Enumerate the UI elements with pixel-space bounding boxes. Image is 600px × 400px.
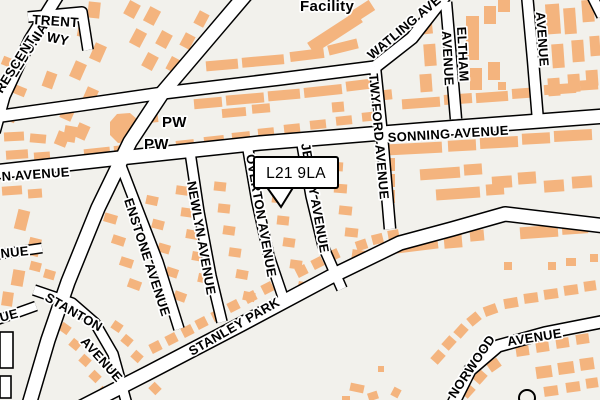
building: [579, 357, 595, 371]
building: [28, 189, 43, 199]
postcode-callout-label: L21 9LA: [266, 165, 326, 182]
building: [585, 377, 598, 389]
building: [282, 237, 295, 248]
building: [484, 6, 496, 24]
building: [87, 1, 101, 18]
poi-label-facility-4: Facility: [300, 0, 354, 15]
building: [228, 247, 241, 258]
building: [345, 227, 359, 237]
building: [565, 381, 580, 393]
building: [419, 74, 432, 93]
building: [277, 215, 290, 225]
building: [522, 132, 551, 144]
building: [339, 205, 353, 215]
poi-label-pw-5: PW: [162, 114, 187, 131]
building: [583, 280, 596, 292]
building: [575, 333, 589, 345]
building: [423, 44, 437, 67]
building: [551, 44, 565, 69]
building: [332, 101, 345, 112]
building: [544, 179, 565, 192]
building: [464, 163, 483, 175]
building: [580, 79, 599, 90]
building: [378, 366, 384, 372]
building: [563, 8, 577, 35]
building: [589, 36, 600, 57]
street-label-avenue-10: AVENUE: [439, 30, 457, 86]
building: [336, 115, 353, 126]
building: [543, 288, 558, 300]
building: [566, 258, 576, 266]
white-building: [0, 376, 11, 398]
building: [548, 262, 556, 270]
building: [214, 181, 227, 191]
building: [448, 139, 477, 151]
poi-label-pw-6: PW: [144, 136, 169, 153]
building: [310, 119, 327, 130]
building: [504, 262, 512, 270]
building: [488, 62, 500, 80]
building: [554, 129, 593, 142]
building: [2, 185, 23, 195]
building: [523, 292, 538, 304]
street-label-nue-14: NUE: [0, 243, 30, 261]
building: [486, 183, 505, 195]
building: [6, 149, 29, 160]
building: [543, 385, 558, 397]
building: [590, 254, 598, 262]
building: [252, 103, 271, 114]
building: [30, 133, 47, 143]
map-canvas: LEDONIANRESCENTTRENTWYFacilityPWPWWATLIN…: [0, 0, 600, 400]
building: [571, 40, 585, 63]
building: [557, 361, 575, 375]
white-building: [0, 332, 13, 368]
building: [222, 225, 235, 236]
building: [572, 175, 593, 188]
building: [4, 131, 24, 141]
street-map[interactable]: LEDONIANRESCENTTRENTWYFacilityPWPWWATLIN…: [0, 0, 600, 400]
building: [498, 82, 506, 90]
building: [563, 284, 578, 296]
building: [535, 365, 553, 379]
building: [498, 0, 510, 12]
building: [518, 171, 537, 184]
building: [218, 203, 231, 213]
building: [1, 291, 14, 306]
building: [342, 396, 350, 400]
